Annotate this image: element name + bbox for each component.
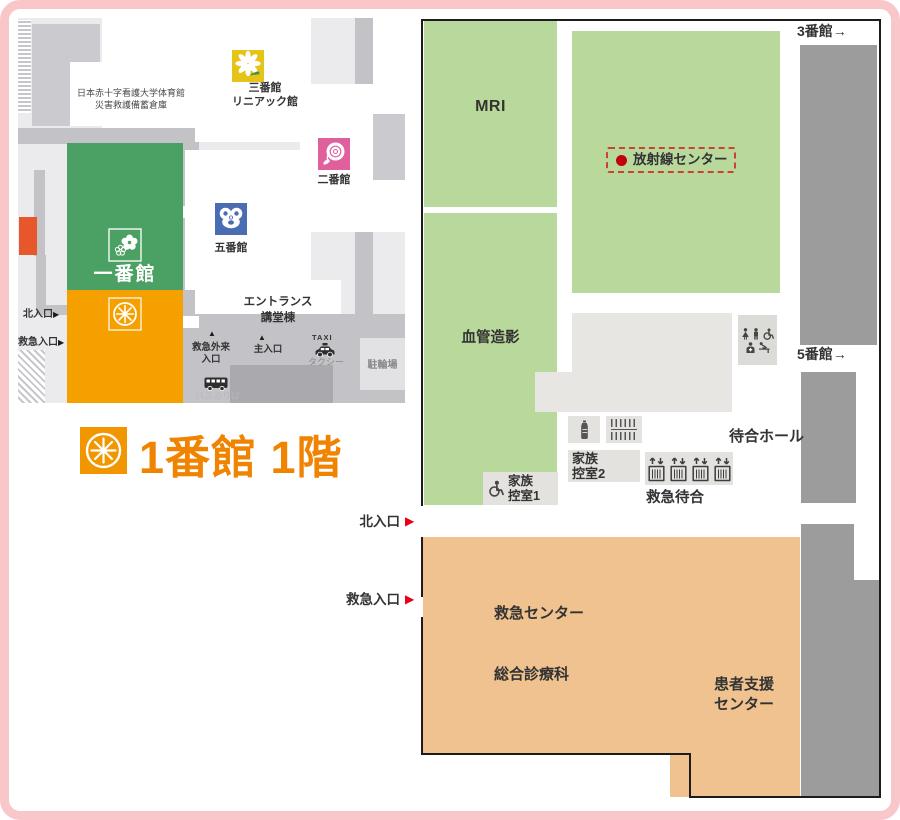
- waiting-hall-label: 待合ホール: [729, 428, 804, 445]
- baby-change-icon: [758, 342, 771, 353]
- wheelchair-icon: [762, 328, 774, 340]
- corridor-to-bldg5: [801, 372, 856, 503]
- family-room1-line1: 家族: [508, 474, 533, 488]
- er-waiting-text: 救急待合: [646, 490, 704, 506]
- er-waiting-label: 救急待合: [646, 490, 704, 507]
- family-room1-line2: 控室1: [508, 489, 540, 503]
- man-icon: [752, 328, 760, 340]
- current-location-dot-icon: [616, 155, 627, 166]
- patient-support-line1: 患者支援: [714, 676, 774, 693]
- floor-outline-top: [421, 19, 881, 21]
- north-entrance-text: 北入口: [360, 514, 401, 529]
- vending-machine-box: [568, 416, 600, 443]
- elevator-icon: [670, 455, 687, 482]
- elevator-bank-box: [645, 452, 733, 485]
- to-building-5-text: 5番館→: [797, 346, 847, 362]
- to-building-3-label: 3番館→: [797, 23, 847, 39]
- elevator-icon: [714, 455, 731, 482]
- family-room2-line2: 控室2: [572, 466, 605, 481]
- stairs-box: [606, 416, 642, 443]
- floor-outline-bottom: [691, 796, 881, 798]
- corridor-to-bldg3: [800, 45, 877, 345]
- family-room1-box: 家族 控室1: [483, 472, 558, 505]
- floor-outline-left-lower: [421, 617, 423, 755]
- floor-outline-right: [879, 19, 881, 798]
- mri-text: MRI: [475, 98, 506, 115]
- wheelchair-icon: [487, 480, 504, 497]
- to-building-3-text: 3番館→: [797, 23, 847, 39]
- hospital-floor-map-page: 日本赤十字看護大学体育館 災害救護備蓄倉庫: [0, 0, 900, 820]
- patient-support-line2: センター: [714, 696, 774, 713]
- angiography-label: 血管造影: [424, 330, 557, 347]
- room-patient-support-arm: [713, 537, 800, 623]
- floor-outline-left-mid: [421, 537, 423, 597]
- stairs-icon: [611, 419, 637, 440]
- north-entrance-label: 北入口: [338, 514, 400, 530]
- radiation-center-label: 放射線センター: [633, 152, 728, 168]
- floor-outline-er-bottom: [421, 753, 691, 755]
- emergency-entrance-label: 救急入口: [328, 592, 400, 608]
- waiting-hall-area: [535, 372, 572, 412]
- floor-plan: 家族 控室2 家族 控室1: [0, 0, 900, 820]
- general-medicine-label: 総合診療科: [494, 666, 569, 683]
- floor-outline-left-upper: [421, 19, 423, 506]
- radiation-center-badge: 放射線センター: [606, 147, 736, 173]
- restroom-icon-box: [738, 315, 777, 365]
- waiting-hall-area: [572, 313, 732, 412]
- emergency-entrance-arrow-icon: ▶: [405, 593, 414, 605]
- emergency-entrance-text: 救急入口: [346, 592, 400, 607]
- er-center-text: 救急センター: [494, 605, 584, 622]
- angiography-text: 血管造影: [462, 330, 520, 346]
- elevator-icon: [692, 455, 709, 482]
- patient-support-label: 患者支援 センター: [714, 675, 774, 714]
- family-room1-label: 家族 控室1: [508, 474, 540, 504]
- elevator-icon: [648, 455, 665, 482]
- woman-icon: [741, 328, 750, 340]
- room-angiography: [424, 213, 557, 505]
- north-entrance-arrow-icon: ▶: [405, 515, 414, 527]
- to-building-5-label: 5番館→: [797, 346, 847, 362]
- family-room2-line1: 家族: [572, 451, 598, 466]
- floor-outline-ps-left: [689, 753, 691, 798]
- corridor-south-lower: [801, 580, 880, 797]
- corridor-south-upper: [801, 524, 854, 580]
- mri-label: MRI: [424, 98, 557, 116]
- er-center-label: 救急センター: [494, 605, 584, 622]
- first-aid-person-icon: [745, 342, 756, 353]
- vending-machine-icon: [579, 420, 590, 440]
- waiting-hall-text: 待合ホール: [729, 428, 804, 445]
- family-room2-label: 家族 控室2: [572, 451, 605, 482]
- general-medicine-text: 総合診療科: [494, 666, 569, 683]
